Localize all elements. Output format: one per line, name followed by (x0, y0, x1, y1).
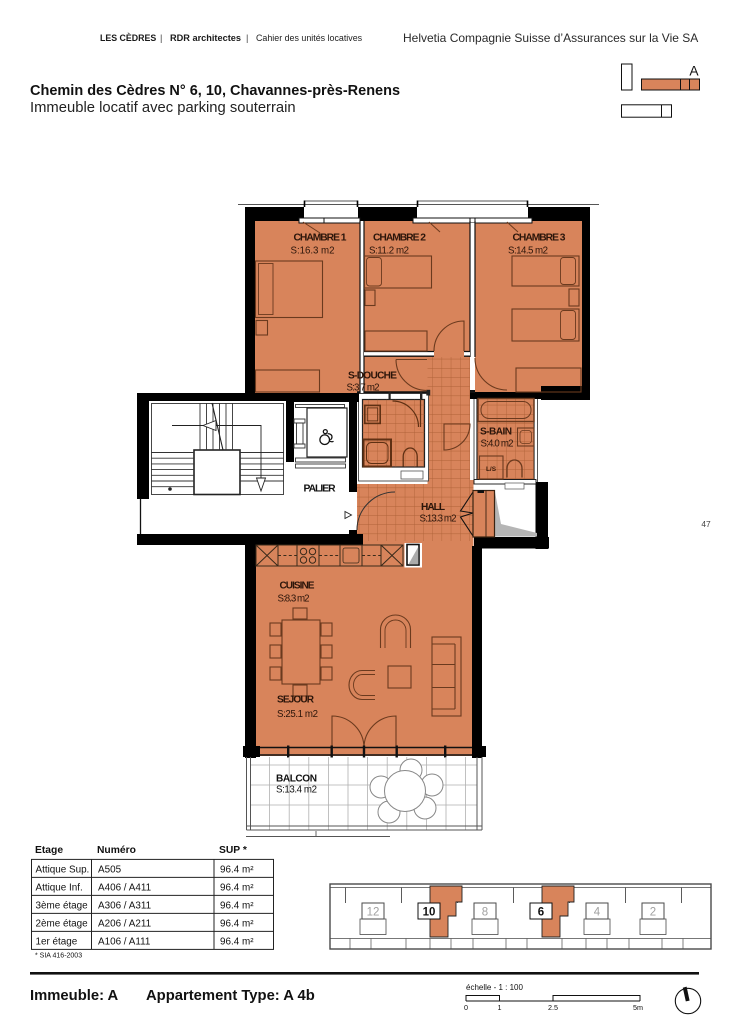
svg-text:S:8.3 m2: S:8.3 m2 (278, 594, 310, 605)
svg-text:2.5: 2.5 (548, 1003, 558, 1012)
svg-text:S:13.3 m2: S:13.3 m2 (420, 514, 457, 525)
svg-text:S:11.2 m2: S:11.2 m2 (369, 246, 409, 257)
svg-text:5m: 5m (633, 1003, 643, 1012)
svg-text:S:16.3 m2: S:16.3 m2 (291, 246, 335, 257)
svg-text:0: 0 (464, 1003, 468, 1012)
svg-text:2ème étage: 2ème étage (36, 919, 89, 930)
svg-text:A206 / A211: A206 / A211 (98, 919, 152, 930)
svg-text:2: 2 (650, 907, 656, 919)
svg-text:A306 / A311: A306 / A311 (98, 901, 152, 912)
svg-text:12: 12 (367, 907, 380, 919)
svg-text:L/S: L/S (486, 466, 497, 473)
svg-text:A406 / A411: A406 / A411 (98, 883, 152, 894)
svg-text:Helvetia Compagnie Suisse d’As: Helvetia Compagnie Suisse d’Assurances s… (403, 31, 698, 45)
svg-text:CHAMBRE 1: CHAMBRE 1 (294, 233, 347, 244)
svg-text:3ème étage: 3ème étage (36, 901, 89, 912)
svg-text:CUISINE: CUISINE (280, 581, 315, 592)
svg-text:PALIER: PALIER (304, 484, 337, 495)
svg-text:|: | (246, 33, 248, 43)
svg-text:S:4.0 m2: S:4.0 m2 (481, 439, 514, 450)
svg-text:47: 47 (701, 519, 711, 529)
svg-text:Appartement Type: A 4b: Appartement Type: A 4b (146, 988, 315, 1004)
svg-text:S:3.7 m2: S:3.7 m2 (347, 383, 380, 394)
svg-text:échelle - 1 : 100: échelle - 1 : 100 (466, 983, 523, 992)
svg-text:Chemin des Cèdres N° 6, 10, Ch: Chemin des Cèdres N° 6, 10, Chavannes-pr… (30, 83, 400, 99)
svg-text:SEJOUR: SEJOUR (277, 695, 315, 706)
svg-text:Immeuble locatif avec parking: Immeuble locatif avec parking souterrain (30, 100, 296, 116)
svg-text:Immeuble: A: Immeuble: A (30, 988, 119, 1004)
svg-text:Cahier des unités locatives: Cahier des unités locatives (256, 33, 363, 43)
svg-text:96.4 m²: 96.4 m² (220, 937, 254, 948)
svg-text:A106 / A111: A106 / A111 (98, 937, 151, 948)
svg-text:S:14.5 m2: S:14.5 m2 (508, 246, 548, 257)
svg-text:BALCON: BALCON (276, 774, 317, 785)
svg-text:|: | (160, 33, 162, 43)
svg-text:RDR architectes: RDR architectes (170, 33, 241, 43)
svg-text:CHAMBRE 2: CHAMBRE 2 (373, 233, 426, 244)
svg-text:1er étage: 1er étage (36, 937, 78, 948)
svg-text:S:13.4 m2: S:13.4 m2 (276, 785, 317, 796)
svg-text:CHAMBRE 3: CHAMBRE 3 (513, 233, 566, 244)
svg-text:S-DOUCHE: S-DOUCHE (348, 371, 397, 382)
svg-text:96.4 m²: 96.4 m² (220, 901, 254, 912)
svg-text:A: A (689, 64, 699, 79)
svg-text:HALL: HALL (421, 502, 445, 513)
svg-text:96.4 m²: 96.4 m² (220, 865, 254, 876)
svg-text:96.4 m²: 96.4 m² (220, 883, 254, 894)
svg-text:LES CÈDRES: LES CÈDRES (100, 33, 156, 43)
svg-text:Attique Inf.: Attique Inf. (36, 883, 83, 894)
svg-text:Etage: Etage (35, 845, 63, 856)
svg-text:Numéro: Numéro (97, 845, 136, 856)
svg-text:96.4 m²: 96.4 m² (220, 919, 254, 930)
svg-text:* SIA 416-2003: * SIA 416-2003 (35, 953, 82, 960)
svg-text:4: 4 (594, 907, 601, 919)
svg-text:10: 10 (423, 907, 436, 919)
svg-text:1: 1 (498, 1003, 502, 1012)
svg-text:6: 6 (538, 907, 544, 919)
svg-text:S-BAIN: S-BAIN (480, 427, 512, 438)
svg-text:S:25.1 m2: S:25.1 m2 (277, 709, 318, 720)
svg-text:A505: A505 (98, 865, 122, 876)
svg-text:Attique Sup.: Attique Sup. (36, 865, 90, 876)
svg-text:SUP *: SUP * (219, 845, 247, 856)
svg-text:8: 8 (482, 907, 488, 919)
